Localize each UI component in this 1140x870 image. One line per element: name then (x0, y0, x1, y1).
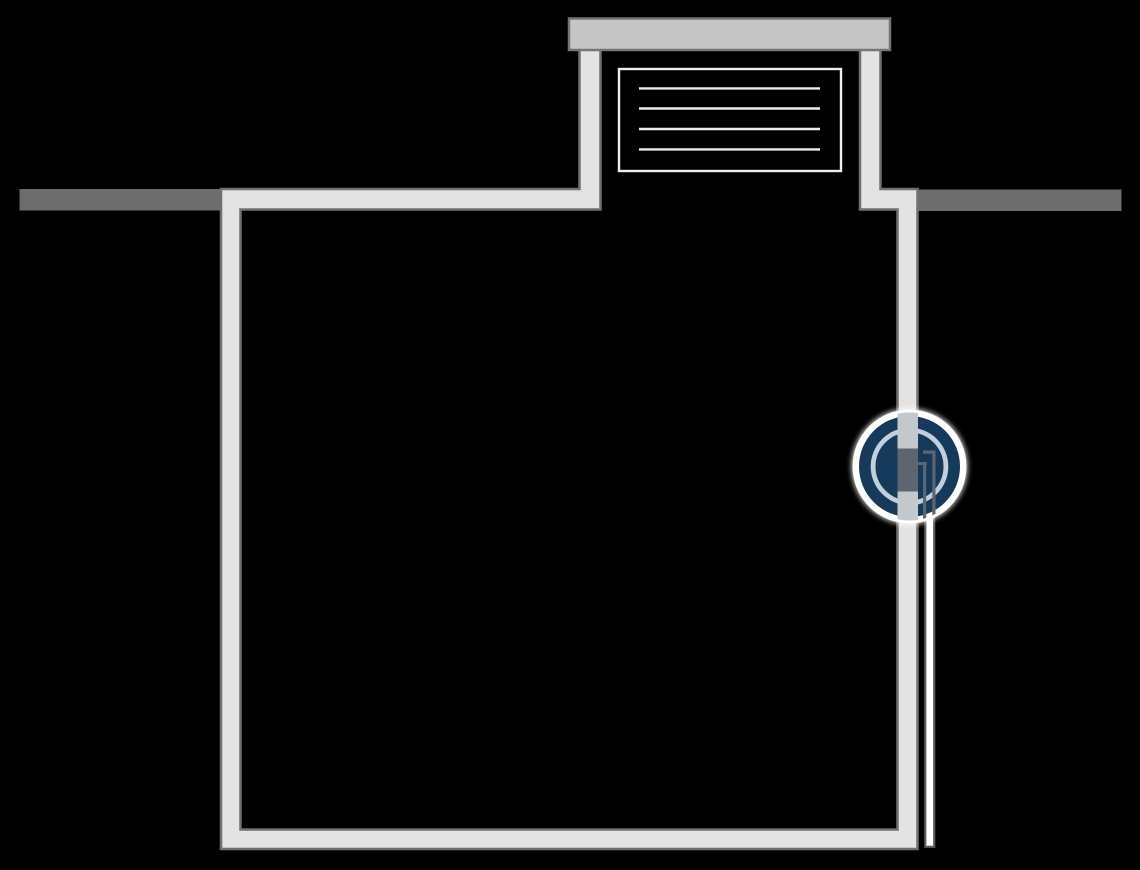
vent-grille (619, 69, 841, 171)
shaft-cover-lid (569, 19, 890, 51)
ground-surface-right (918, 190, 1122, 212)
tank-walls-and-floor (221, 45, 918, 849)
elbow-outer-vertical-line (932, 451, 935, 523)
detail-seal-block (898, 449, 919, 492)
wall-penetration-detail-callout (852, 408, 968, 526)
vent-grille-frame (619, 69, 841, 171)
tank-cross-section-drawing (0, 0, 1140, 870)
ground-surface-left (20, 189, 221, 211)
elbow-inner-vertical-line (923, 462, 926, 523)
diagram-canvas (0, 0, 1140, 870)
